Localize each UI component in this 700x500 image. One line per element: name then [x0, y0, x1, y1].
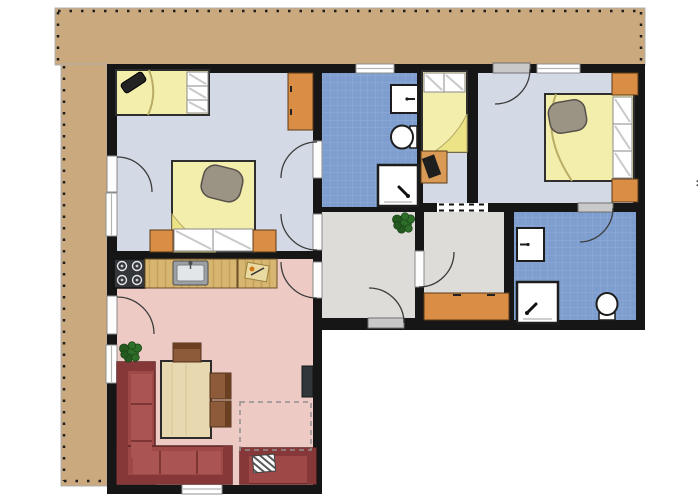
door-leaf-bedroom1-balcony	[107, 156, 117, 192]
tv	[302, 366, 313, 397]
door-leaf-entrance	[368, 318, 404, 328]
dining-chair-right-2	[210, 401, 231, 427]
kitchen-sink	[173, 261, 208, 285]
window-bathroom-1	[356, 64, 394, 73]
sofa-back-left	[117, 362, 128, 484]
balcony-left	[61, 64, 107, 486]
door-leaf-living-balcony	[107, 296, 117, 334]
small-sofa-arm-left	[240, 448, 249, 484]
kitchen-stove	[114, 259, 145, 288]
single-bed-pillows	[187, 72, 208, 113]
dining-chair-top	[173, 343, 201, 362]
door-leaf-bathroom-2	[578, 203, 613, 212]
floor-plan-drawing	[0, 0, 700, 500]
nightstand-bottom-bedroom-3	[612, 179, 638, 202]
clothes-on-bed-3	[547, 98, 589, 135]
window-bedroom-3	[537, 64, 580, 73]
nightstand-left	[150, 230, 173, 252]
small-sofa-back	[249, 448, 307, 456]
sofa-arm-top	[117, 362, 155, 371]
small-sofa-arm-right	[307, 448, 316, 484]
balcony-top	[55, 8, 645, 65]
toilet-bathroom-1	[391, 126, 417, 149]
sofa-back-bottom	[117, 475, 232, 484]
door-leaf-living-hall	[313, 262, 322, 298]
floor-plan-image: :	[0, 0, 700, 500]
sofa-seat-horizontal	[133, 451, 221, 474]
window-living-bottom	[182, 484, 222, 494]
door-leaf-bathroom-1	[313, 141, 322, 178]
watermark-fragment: :	[694, 176, 700, 189]
bed-bedroom-2-pillows	[424, 73, 465, 92]
door-leaf-bedroom3-balcony	[493, 63, 530, 73]
utensil	[250, 267, 255, 272]
striped-pillow	[252, 454, 275, 473]
sofa-seat-vertical	[131, 374, 152, 458]
nightstand-top-bedroom-3	[612, 73, 638, 95]
shower-bathroom-2	[517, 282, 558, 323]
window-living-left	[106, 345, 117, 383]
sink-bathroom-2	[517, 228, 544, 261]
double-bed-3-pillows	[613, 97, 632, 178]
shower-bathroom-1	[378, 165, 418, 206]
door-leaf-hall1-hall2	[415, 251, 424, 287]
sideboard-hall-2	[424, 293, 509, 320]
window-bedroom-1-left	[106, 193, 117, 236]
nightstand-right	[253, 230, 276, 252]
door-leaf-bedroom1-hall	[313, 214, 322, 250]
dining-chair-right-1	[210, 373, 231, 399]
sofa-arm-right	[223, 446, 232, 484]
toilet-bathroom-2	[597, 293, 618, 320]
wardrobe	[288, 73, 313, 130]
sink-bathroom-1	[391, 85, 418, 113]
double-bed-1-pillows	[174, 229, 253, 251]
